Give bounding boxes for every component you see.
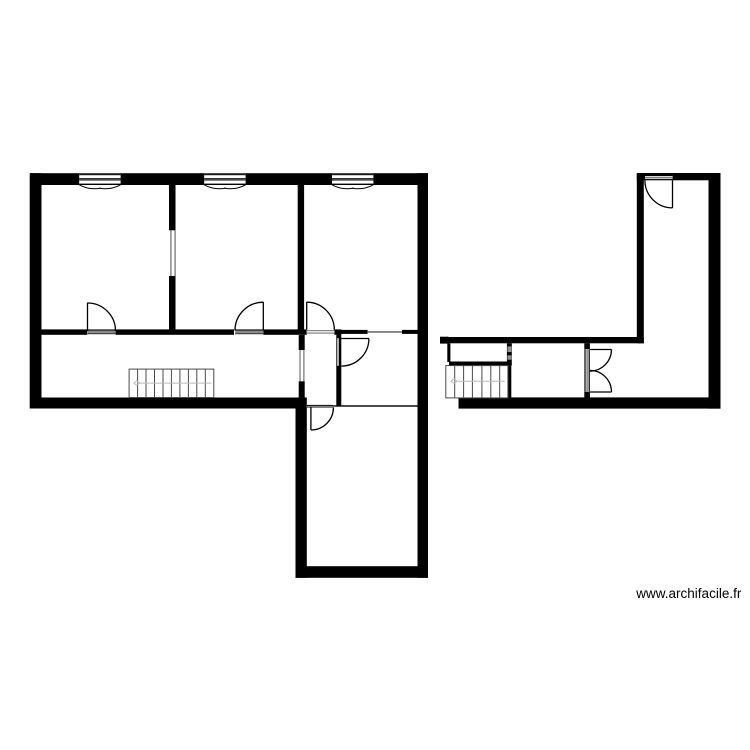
svg-text:www.archifacile.fr: www.archifacile.fr [635, 586, 742, 601]
